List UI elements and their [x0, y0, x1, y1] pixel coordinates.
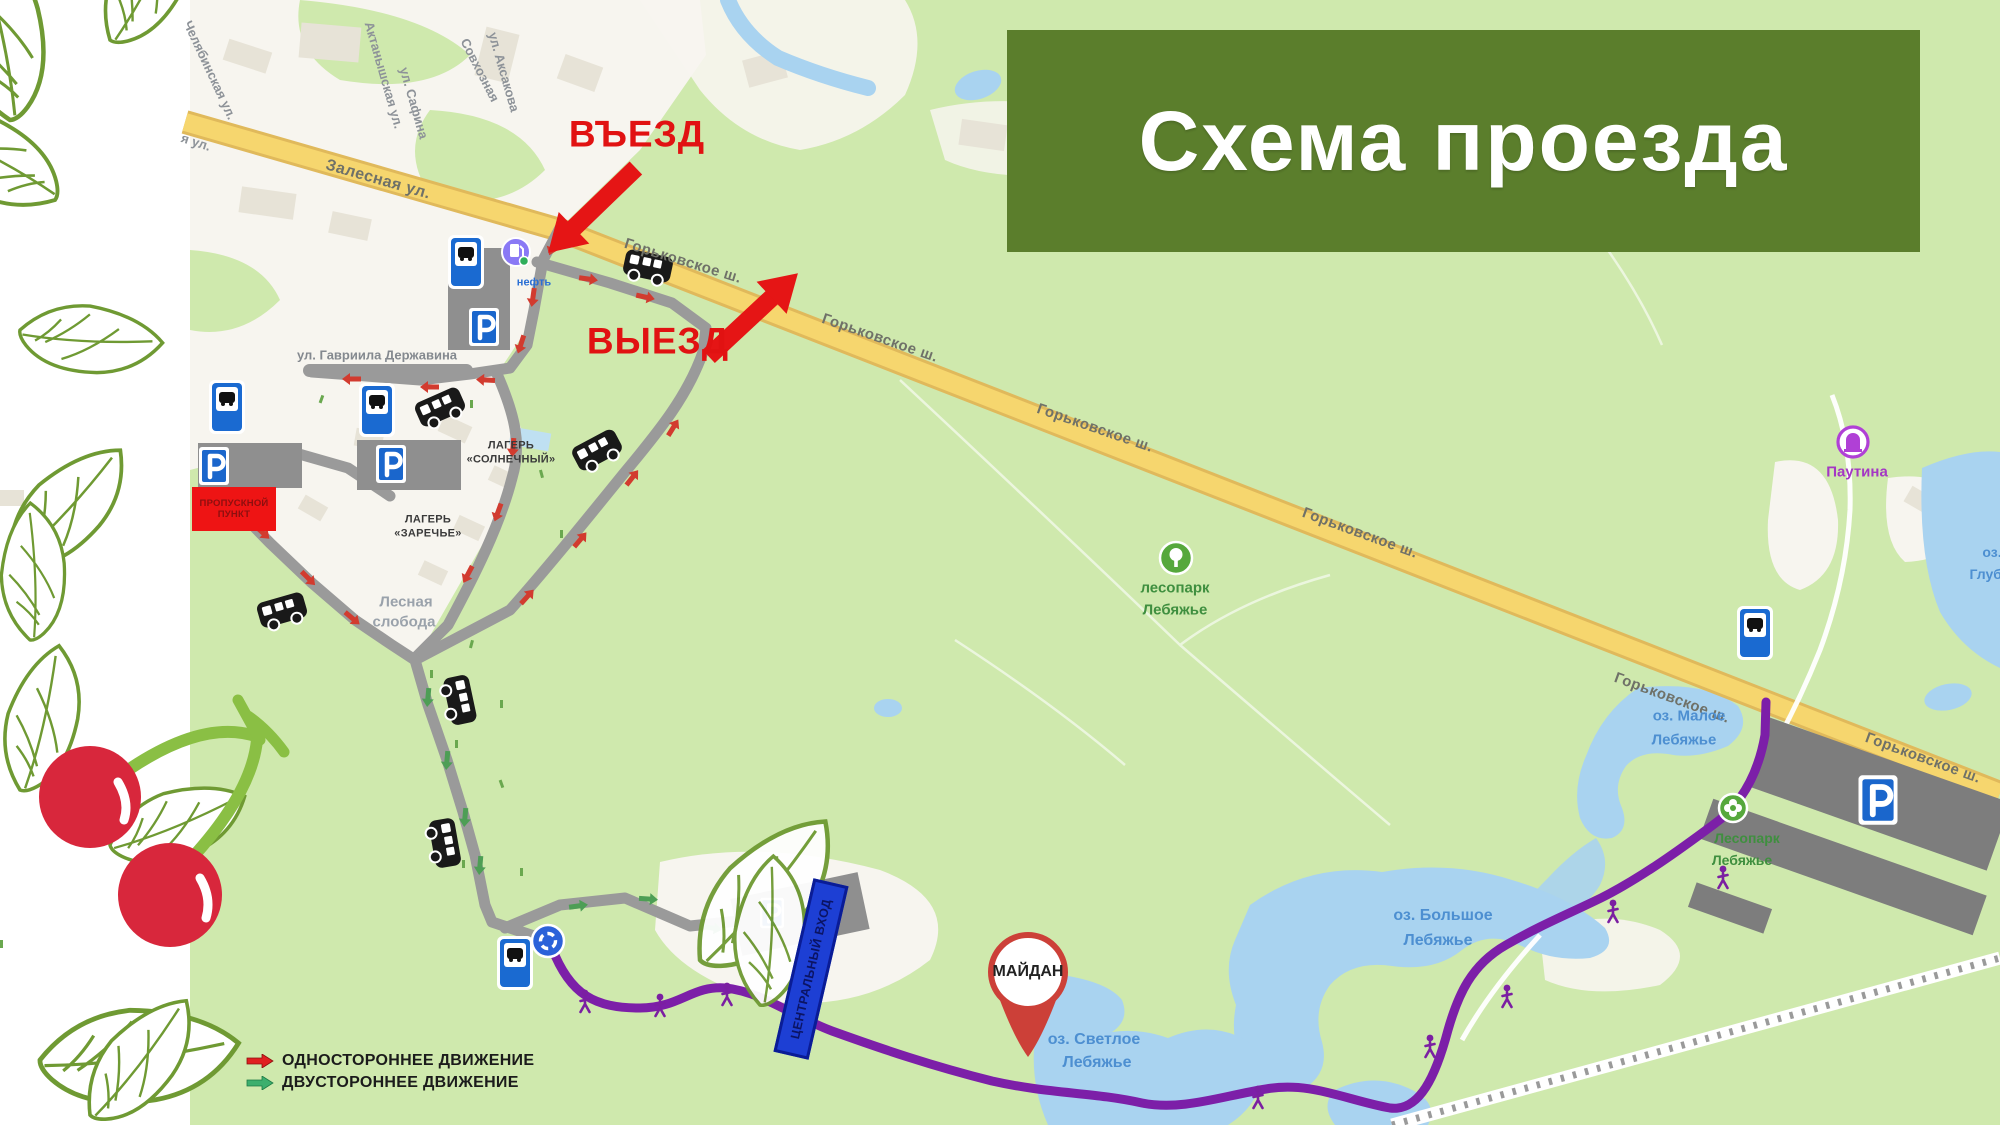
page-title: Схема проезда [1139, 93, 1789, 190]
legend-two-way: ДВУСТОРОННЕЕ ДВИЖЕНИЕ [246, 1074, 519, 1092]
legend-two-way-label: ДВУСТОРОННЕЕ ДВИЖЕНИЕ [282, 1074, 519, 1092]
bus-stop-icon[interactable] [448, 235, 484, 289]
bus-stop-icon[interactable] [1737, 606, 1773, 660]
legend-one-way-label: ОДНОСТОРОННЕЕ ДВИЖЕНИЕ [282, 1052, 534, 1070]
two-way-arrow-icon [246, 1076, 274, 1090]
parking-sign[interactable] [199, 447, 229, 485]
title-banner: Схема проезда [1007, 30, 1920, 252]
pautina-poi-icon[interactable] [1838, 427, 1868, 457]
parking-sign[interactable] [469, 308, 499, 346]
one-way-arrow-icon [246, 1054, 274, 1068]
parking-sign[interactable] [1859, 775, 1898, 824]
bus-stop-icon[interactable] [209, 380, 245, 434]
checkpoint-label: ПРОПУСКНОЙ [200, 498, 269, 509]
derzhavina-road [303, 364, 473, 377]
slide: я ул. Челябинская ул. Актанышская ул. ул… [0, 0, 2000, 1125]
roundabout-icon [532, 925, 564, 957]
tree-poi-icon[interactable] [1160, 542, 1192, 574]
flower-poi-icon[interactable] [1719, 794, 1747, 822]
gas-station-icon[interactable] [502, 238, 530, 266]
bus-stop-icon[interactable] [359, 383, 395, 437]
legend-one-way: ОДНОСТОРОННЕЕ ДВИЖЕНИЕ [246, 1052, 534, 1070]
checkpoint-badge: ПРОПУСКНОЙ ПУНКТ [192, 487, 276, 531]
bus-stop-icon[interactable] [497, 936, 533, 990]
parking-sign[interactable] [376, 445, 406, 483]
checkpoint-label: ПУНКТ [218, 509, 250, 520]
